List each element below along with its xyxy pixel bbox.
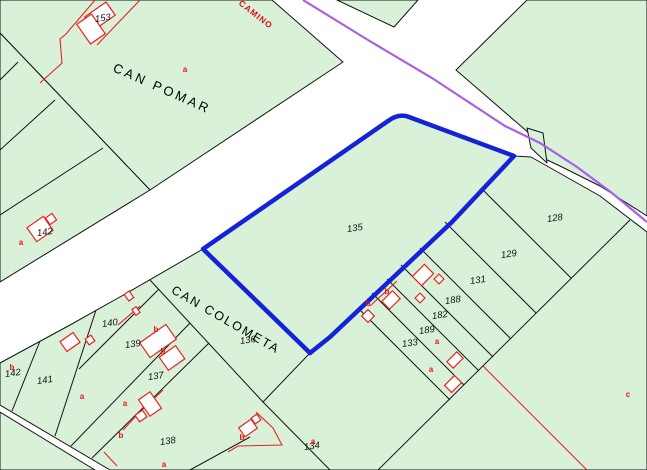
building-letter: b	[7, 364, 17, 372]
cadastral-map-canvas[interactable]: CAN POMAR CAN COLOMETA CAMINO 153 142 14…	[0, 0, 647, 470]
building-letter: b	[382, 288, 392, 296]
building-letter: a	[16, 239, 26, 247]
building-letter: a	[426, 366, 436, 374]
parcel-top-wedge[interactable]	[337, 0, 418, 27]
building-letter: a	[308, 438, 318, 446]
building-letter: b	[363, 300, 373, 308]
building-letter: a	[77, 393, 87, 401]
map-geometry	[0, 0, 647, 470]
building-letter: a	[432, 338, 442, 346]
building-letter: a	[180, 66, 190, 74]
building-letter: c	[623, 391, 633, 399]
building-letter: a	[120, 400, 130, 408]
building-letter: b	[151, 326, 161, 334]
building-letter: b	[237, 434, 247, 442]
building-letter: b	[116, 432, 126, 440]
building-letter: a	[159, 461, 169, 469]
building-letter: b	[158, 348, 168, 356]
